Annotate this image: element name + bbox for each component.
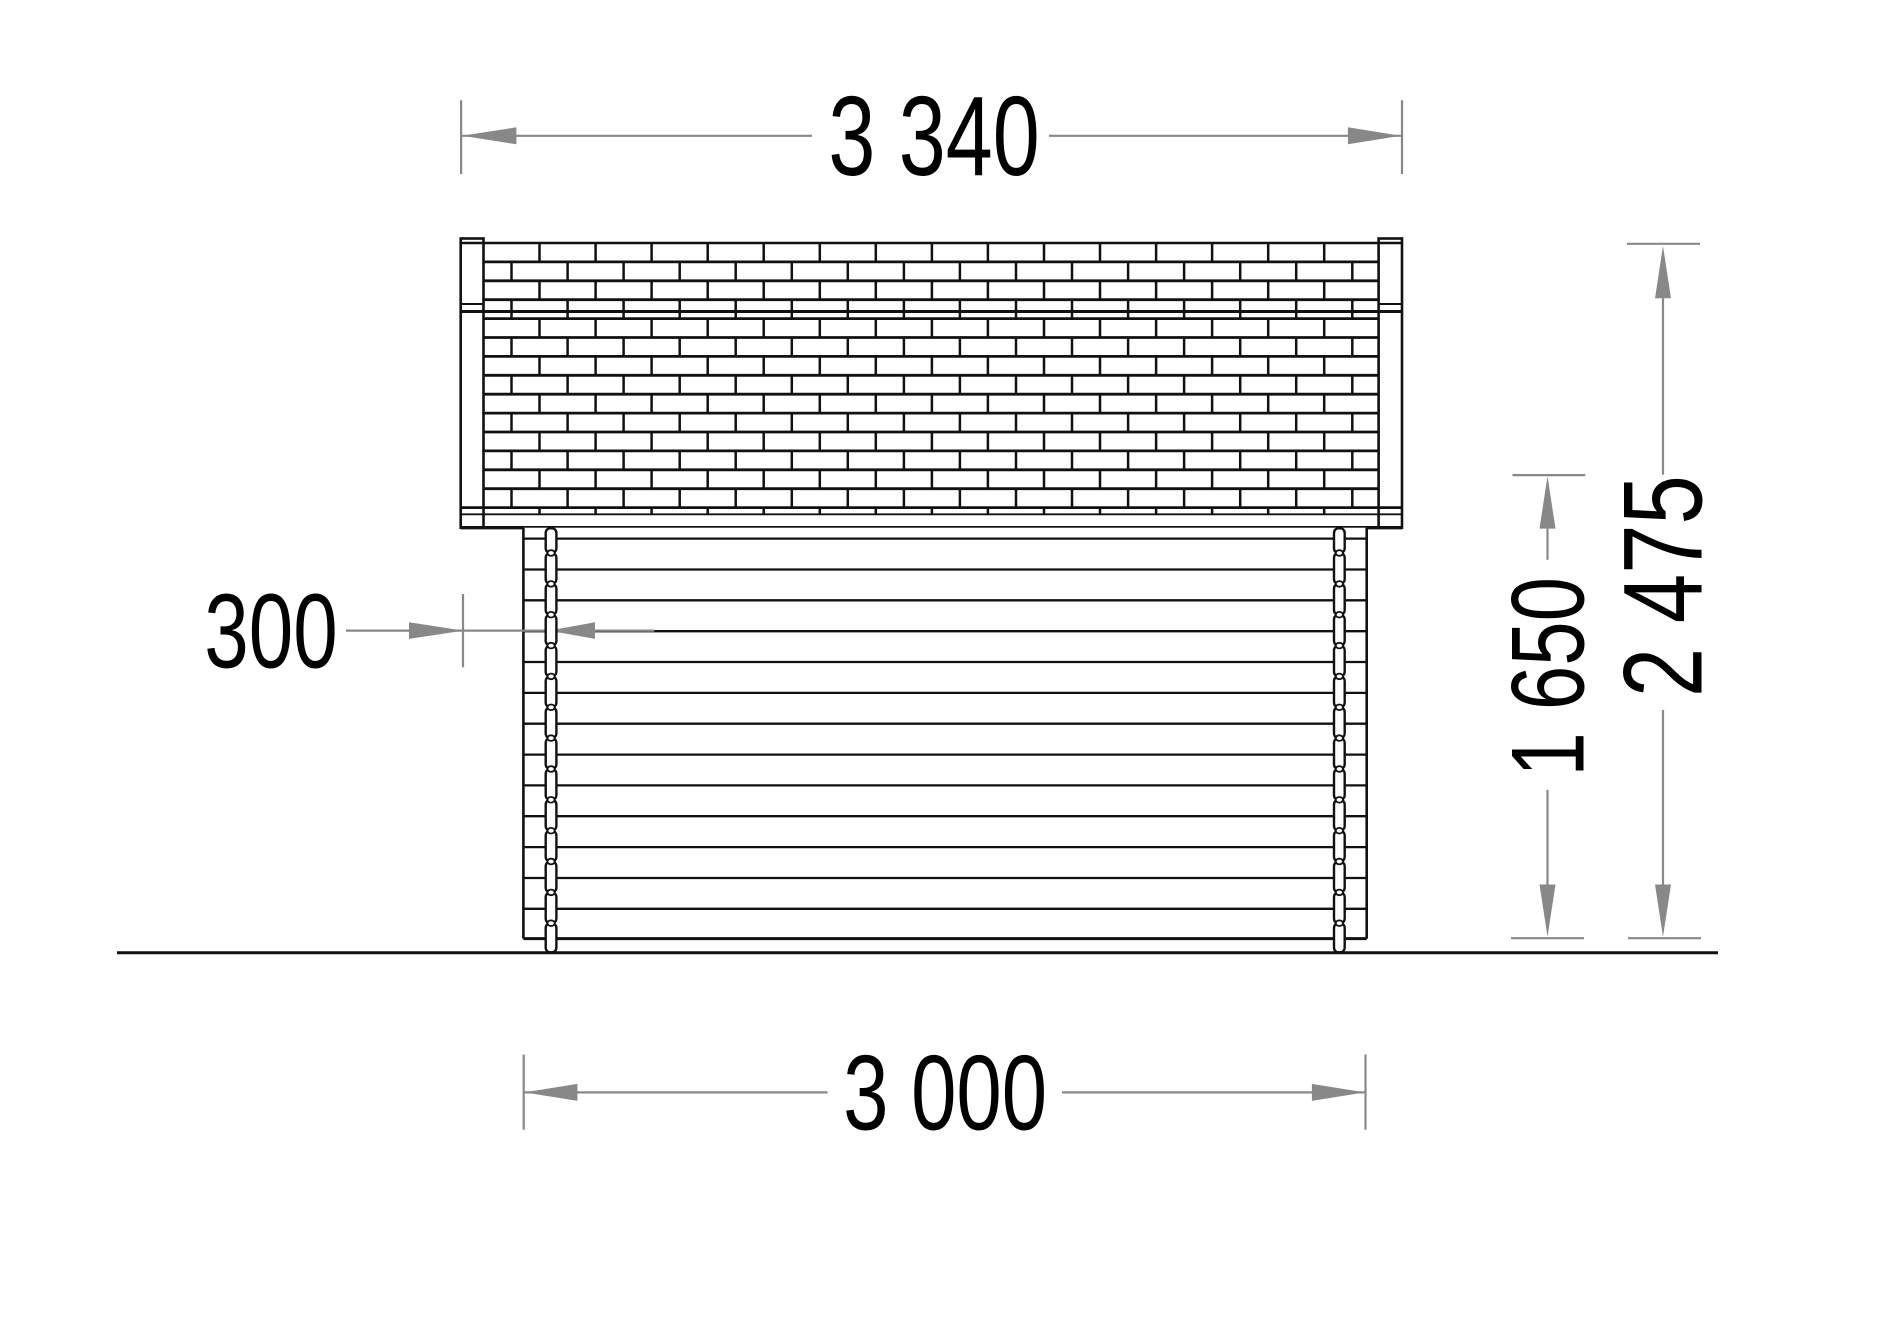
svg-text:3 000: 3 000 <box>843 1034 1047 1153</box>
svg-text:2 475: 2 475 <box>1602 475 1726 697</box>
svg-text:300: 300 <box>204 572 337 690</box>
svg-text:1 650: 1 650 <box>1489 577 1606 777</box>
svg-text:3 340: 3 340 <box>828 73 1039 200</box>
